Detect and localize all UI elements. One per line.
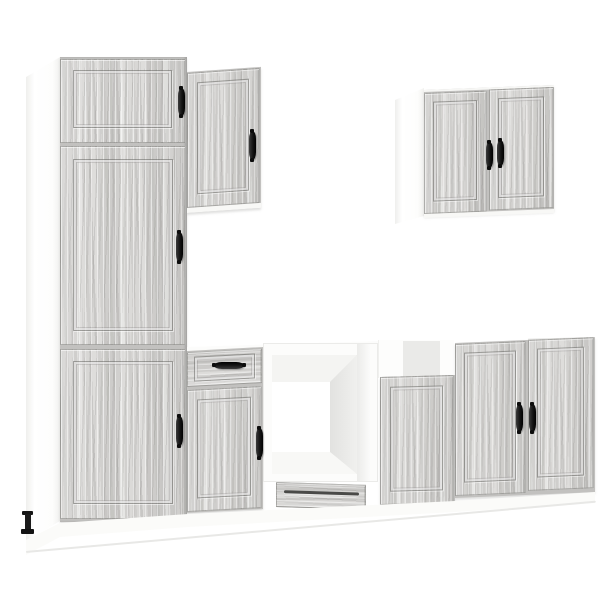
tall-cabinet-bottom-door [60, 349, 186, 519]
base-cabinet-drawer-handle [214, 362, 244, 369]
tall-cabinet-middle-door-handle [176, 232, 183, 262]
base-cabinet-double-right-handle [529, 404, 536, 432]
base-cabinet-double [455, 337, 595, 498]
wall-cabinet-double-side-panel [395, 88, 424, 224]
base-cabinet-drawer-door [187, 386, 262, 512]
leg-stem [25, 514, 31, 530]
wall-cabinet-single-handle [249, 131, 256, 160]
oven-cavity-interior [272, 355, 357, 474]
tall-cabinet-bottom-door-handle [176, 416, 183, 446]
leg-foot [21, 529, 34, 534]
tall-cabinet-side-panel [26, 57, 60, 541]
oven-housing-cabinet [263, 343, 378, 482]
base-cabinet-plain-door [380, 375, 454, 505]
wall-cabinet-double-left-door [424, 91, 487, 214]
base-cabinet-plain-open-top [378, 340, 454, 378]
door-panel [537, 347, 584, 478]
open-top-back-panel [403, 341, 440, 378]
cabinet-leg [21, 511, 34, 535]
tall-pantry-cabinet [60, 57, 187, 522]
door-panel [197, 397, 251, 499]
base-cabinet-double-left-handle [516, 404, 523, 432]
tall-cabinet-top-door [60, 59, 186, 143]
door-panel [197, 79, 249, 195]
tall-cabinet-middle-door [60, 146, 186, 345]
cavity-back-panel [272, 382, 330, 452]
base-cabinet-plain [380, 375, 455, 507]
kitchen-cabinet-set-photo [0, 0, 600, 600]
door-panel [433, 100, 477, 202]
door-panel [73, 159, 173, 331]
drawer-groove-handle [284, 490, 359, 495]
door-panel [464, 350, 516, 482]
oven-cabinet-drawer [276, 482, 366, 510]
door-panel [498, 96, 544, 198]
door-panel [73, 361, 173, 504]
base-cabinet-double-right-door [528, 337, 594, 491]
base-cabinet-drawer [187, 347, 263, 513]
wall-cabinet-double-left-handle [486, 142, 493, 168]
base-cabinet-drawer-door-handle [256, 428, 263, 458]
door-panel [390, 385, 443, 491]
oven-cabinet-right-face [357, 344, 378, 481]
wall-cabinet-double-right-handle [497, 140, 504, 166]
tall-cabinet-top-door-handle [178, 88, 185, 116]
door-panel [73, 70, 172, 128]
